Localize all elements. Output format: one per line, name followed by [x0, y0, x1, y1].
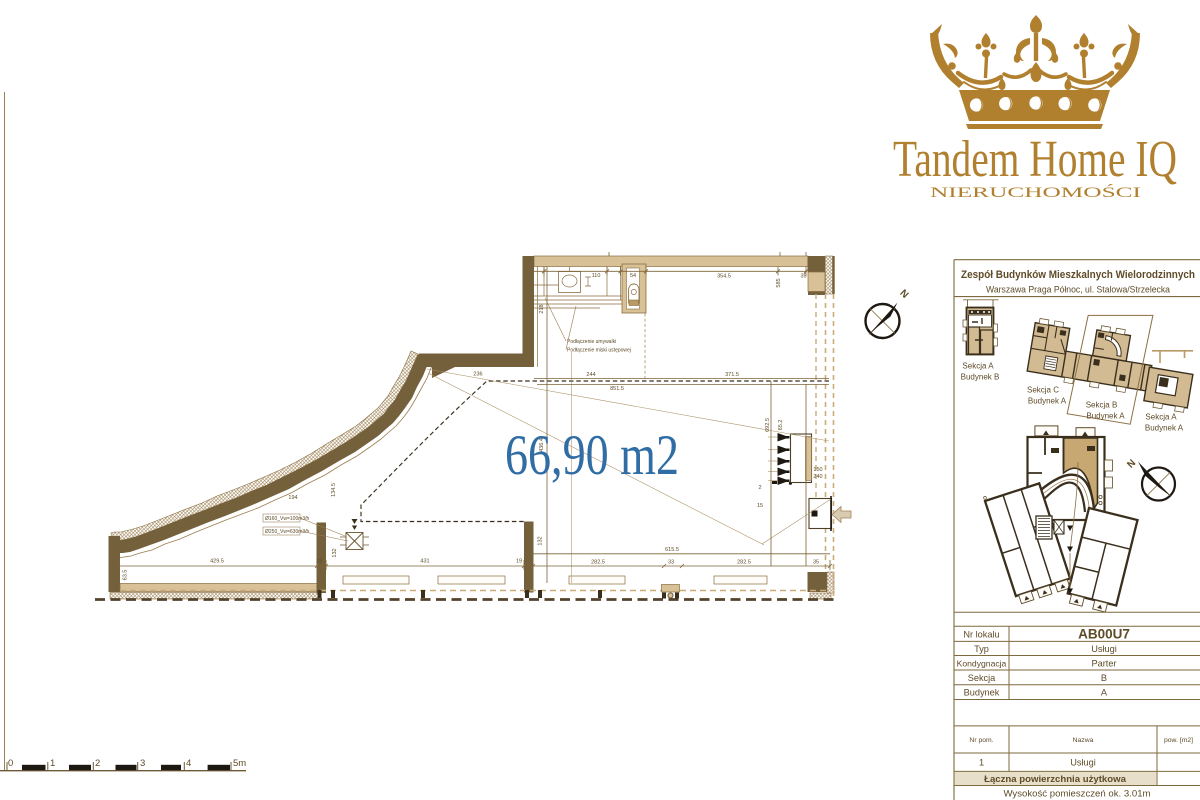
svg-text:851.5: 851.5: [610, 386, 624, 392]
svg-text:N: N: [897, 288, 910, 301]
svg-text:354.5: 354.5: [717, 274, 731, 280]
svg-text:240: 240: [813, 474, 822, 480]
svg-text:615.5: 615.5: [665, 547, 679, 553]
svg-text:282.5: 282.5: [737, 560, 751, 566]
svg-text:NIERUCHOMOŚCI: NIERUCHOMOŚCI: [930, 184, 1141, 201]
svg-text:Sekcja A: Sekcja A: [962, 362, 994, 371]
svg-text:66,90 m2: 66,90 m2: [505, 424, 679, 487]
svg-text:282.5: 282.5: [591, 560, 605, 566]
svg-text:110: 110: [592, 273, 601, 279]
svg-text:4: 4: [186, 758, 191, 769]
svg-text:Budynek A: Budynek A: [1145, 424, 1184, 433]
svg-text:A: A: [1101, 688, 1108, 698]
svg-text:Tandem Home IQ: Tandem Home IQ: [893, 131, 1177, 188]
svg-text:63.5: 63.5: [123, 570, 129, 581]
svg-text:N: N: [1125, 458, 1138, 471]
svg-text:2: 2: [758, 485, 761, 491]
svg-text:19: 19: [516, 559, 522, 565]
svg-text:Nr pom.: Nr pom.: [969, 737, 993, 744]
svg-text:236: 236: [473, 372, 482, 378]
svg-text:150: 150: [813, 467, 822, 473]
svg-text:AB00U7: AB00U7: [1078, 627, 1130, 642]
svg-text:585: 585: [776, 278, 782, 287]
svg-text:15: 15: [757, 503, 763, 509]
svg-text:244: 244: [586, 372, 595, 378]
svg-text:1: 1: [979, 758, 984, 768]
svg-text:19: 19: [316, 559, 322, 565]
svg-text:Podłączenie miski ustępowej: Podłączenie miski ustępowej: [567, 348, 631, 354]
svg-text:35: 35: [813, 560, 819, 566]
svg-text:429.5: 429.5: [210, 559, 224, 565]
svg-text:Podłączenie umywalki: Podłączenie umywalki: [567, 339, 616, 345]
svg-text:3: 3: [140, 758, 145, 769]
svg-text:5m: 5m: [233, 758, 246, 769]
svg-text:Budynek: Budynek: [964, 688, 1000, 698]
svg-text:Usługi: Usługi: [1091, 644, 1117, 654]
svg-text:Zespół Budynków Mieszkalnych W: Zespół Budynków Mieszkalnych Wielorodzin…: [961, 269, 1195, 281]
svg-text:132: 132: [538, 536, 544, 545]
svg-text:Nr lokalu: Nr lokalu: [963, 630, 999, 640]
svg-text:218: 218: [539, 304, 545, 313]
svg-text:B: B: [1101, 673, 1107, 683]
svg-text:431: 431: [420, 559, 429, 565]
svg-text:692.5: 692.5: [765, 418, 771, 432]
svg-text:132: 132: [332, 548, 338, 557]
svg-text:194: 194: [288, 495, 297, 501]
svg-text:Sekcja A: Sekcja A: [1145, 413, 1177, 422]
svg-text:35: 35: [800, 274, 806, 280]
svg-text:Warszawa Praga Północ, ul. Sta: Warszawa Praga Północ, ul. Stalowa/Strze…: [986, 285, 1170, 295]
svg-text:Sekcja C: Sekcja C: [1027, 386, 1059, 395]
svg-text:1: 1: [50, 758, 55, 769]
svg-text:33: 33: [668, 560, 674, 566]
svg-text:65.2: 65.2: [778, 420, 784, 431]
svg-text:Łączna powierzchnia użytkowa: Łączna powierzchnia użytkowa: [984, 774, 1126, 785]
svg-text:Budynek A: Budynek A: [1028, 397, 1067, 406]
svg-text:Typ: Typ: [974, 644, 989, 654]
svg-text:Sekcja: Sekcja: [968, 673, 996, 683]
svg-text:371.5: 371.5: [725, 372, 739, 378]
svg-text:Budynek B: Budynek B: [961, 373, 1000, 382]
svg-text:Kondygnacja: Kondygnacja: [957, 659, 1007, 669]
svg-text:54: 54: [630, 273, 636, 279]
svg-text:Wysokość pomieszczeń ok. 3.01m: Wysokość pomieszczeń ok. 3.01m: [1003, 789, 1150, 800]
svg-text:0: 0: [8, 758, 13, 769]
svg-text:Budynek A: Budynek A: [1086, 412, 1125, 421]
svg-text:Usługi: Usługi: [1070, 758, 1096, 768]
svg-text:pow. [m2]: pow. [m2]: [1164, 737, 1193, 744]
svg-text:Ø250_Vw=630m3/h: Ø250_Vw=630m3/h: [265, 529, 310, 535]
svg-text:2: 2: [95, 758, 100, 769]
svg-text:Nazwa: Nazwa: [1073, 737, 1094, 744]
svg-text:Parter: Parter: [1091, 659, 1116, 669]
svg-text:134.5: 134.5: [331, 483, 337, 497]
svg-text:Sekcja B: Sekcja B: [1086, 401, 1118, 410]
